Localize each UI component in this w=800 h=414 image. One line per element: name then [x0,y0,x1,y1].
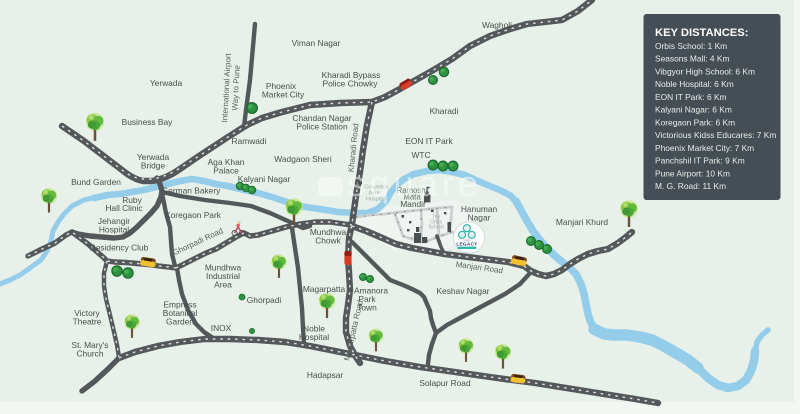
svg-text:Kharadi: Kharadi [430,106,459,116]
svg-text:KEY DISTANCES:: KEY DISTANCES: [655,27,748,39]
svg-text:Kalyani Nagar: Kalyani Nagar [238,174,291,184]
svg-text:Ghorpadi: Ghorpadi [247,295,282,305]
svg-text:Hall Clinic: Hall Clinic [105,203,142,213]
svg-text:Ramwadi: Ramwadi [232,136,267,146]
svg-text:Vibgyor High School: 6 Km: Vibgyor High School: 6 Km [655,67,755,77]
svg-text:Market City: Market City [262,90,305,100]
svg-text:Panchshil IT Park: 9 Km: Panchshil IT Park: 9 Km [655,156,745,166]
svg-text:Bridge: Bridge [141,161,166,171]
svg-text:Manjari Khurd: Manjari Khurd [556,217,608,227]
svg-text:Kalyani Nagar: 6 Km: Kalyani Nagar: 6 Km [655,105,732,115]
svg-text:square: square [347,163,482,204]
svg-text:Pune Airport: 10 Km: Pune Airport: 10 Km [655,169,730,179]
svg-text:Phoenix Market City: 7 Km: Phoenix Market City: 7 Km [655,143,754,153]
svg-text:Noble Hospital: 6 Km: Noble Hospital: 6 Km [655,79,734,89]
svg-text:Area: Area [214,280,232,290]
svg-text:Orbis School: 1 Km: Orbis School: 1 Km [655,41,727,51]
svg-text:Business Bay: Business Bay [122,117,174,127]
svg-text:EON IT Park: EON IT Park [405,136,453,146]
svg-text:Police Station: Police Station [296,122,348,132]
svg-text:Bund Garden: Bund Garden [71,177,121,187]
svg-text:Koregaon Park: 6 Km: Koregaon Park: 6 Km [655,118,735,128]
svg-text:School: School [428,225,443,231]
svg-text:INOX: INOX [211,323,232,333]
svg-text:Church: Church [77,349,104,359]
svg-text:Hospital: Hospital [99,225,129,235]
svg-text:Chowk: Chowk [315,236,341,246]
svg-text:Solapur Road: Solapur Road [419,378,471,388]
svg-text:Nagar: Nagar [468,213,491,223]
svg-text:EON IT Park: 6 Km: EON IT Park: 6 Km [655,92,727,102]
svg-text:Magarpatta: Magarpatta [303,284,346,294]
svg-text:Police Chowky: Police Chowky [323,79,379,89]
svg-text:Yerwada: Yerwada [150,78,183,88]
svg-text:Keshav Nagar: Keshav Nagar [436,286,489,296]
svg-text:Hospital: Hospital [299,332,329,342]
svg-text:Koregaon Park: Koregaon Park [165,210,222,220]
svg-text:German Bakery: German Bakery [162,186,221,196]
svg-text:Residency Club: Residency Club [90,243,149,253]
svg-text:Wadgaon Sheri: Wadgaon Sheri [274,154,332,164]
svg-text:Theatre: Theatre [73,317,102,327]
svg-text:M. G. Road: 11 Km: M. G. Road: 11 Km [655,181,726,191]
svg-text:Seasons Mall: 4 Km: Seasons Mall: 4 Km [655,54,729,64]
svg-text:Garden: Garden [166,317,194,327]
svg-text:Victorious Kidss Educares: 7 K: Victorious Kidss Educares: 7 Km [655,130,776,140]
svg-text:Viman Nagar: Viman Nagar [292,38,341,48]
svg-text:WTC: WTC [411,150,430,160]
svg-text:Palace: Palace [213,166,239,176]
svg-text:Hadapsar: Hadapsar [307,370,344,380]
svg-text:Wagholi: Wagholi [482,20,512,30]
